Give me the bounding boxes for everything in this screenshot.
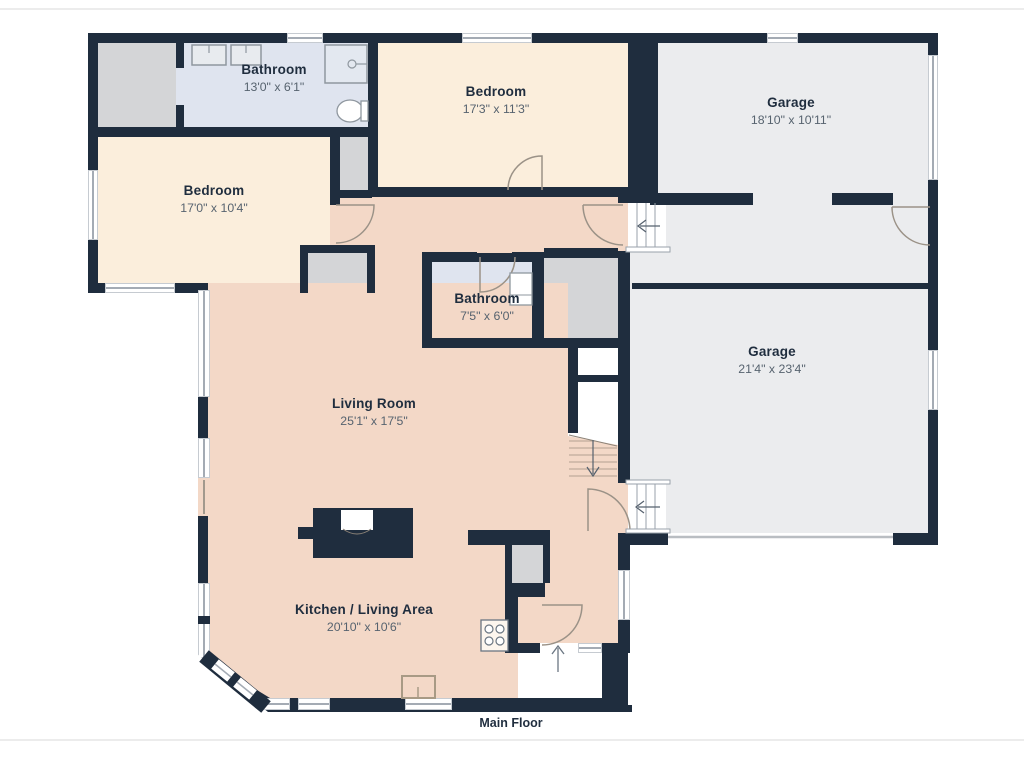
floor-stairs-garage-niche <box>628 483 666 533</box>
wall <box>832 193 893 205</box>
room-label-garage-main: Garage 21'4" x 23'4" <box>738 344 805 376</box>
wall <box>368 187 507 197</box>
floor-pantry <box>512 545 543 583</box>
floor-landing-1 <box>578 348 618 375</box>
floor-closet-a <box>340 137 368 192</box>
wall <box>618 533 668 545</box>
wall <box>468 530 550 545</box>
floor-bathroom-doorway <box>176 68 184 105</box>
window <box>88 170 98 240</box>
patio-door-opening <box>198 478 210 516</box>
wall <box>532 252 544 338</box>
room-name: Garage <box>738 344 805 359</box>
wall <box>367 245 375 293</box>
room-name: Bathroom <box>241 62 306 77</box>
room-name: Living Room <box>332 396 416 411</box>
floor-garage-opening <box>753 193 832 205</box>
wall <box>300 245 375 253</box>
window <box>105 283 175 293</box>
floor-title: Main Floor <box>479 716 542 730</box>
room-dims: 20'10" x 10'6" <box>295 620 433 634</box>
wall <box>602 643 628 710</box>
room-name: Kitchen / Living Area <box>295 602 433 617</box>
room-dims: 25'1" x 17'5" <box>332 414 416 428</box>
window <box>405 698 452 710</box>
entry-door-gap <box>540 643 578 653</box>
window <box>462 33 532 43</box>
wall <box>650 193 753 205</box>
window <box>767 33 798 43</box>
window <box>298 698 330 710</box>
window <box>578 643 602 653</box>
room-dims: 7'5" x 6'0" <box>454 309 519 323</box>
room-dims: 17'3" x 11'3" <box>463 102 530 116</box>
floor-hall-corridor <box>375 253 422 283</box>
wall <box>544 248 618 258</box>
window <box>928 55 938 180</box>
wall <box>543 545 550 583</box>
room-dims: 21'4" x 23'4" <box>738 362 805 376</box>
floor-closet-top-left <box>98 43 176 127</box>
wall <box>98 127 368 137</box>
wall <box>515 643 540 653</box>
floor-doorway-stairs-up <box>618 203 628 251</box>
wall <box>332 190 372 198</box>
floor-closet-b <box>308 253 367 283</box>
floor-stairs-up-niche <box>628 203 666 247</box>
room-label-bathroom-top: Bathroom 13'0" x 6'1" <box>241 62 306 94</box>
garage-door-opening <box>668 533 893 545</box>
wall <box>578 375 618 382</box>
room-label-garage-top: Garage 18'10" x 10'11" <box>751 95 831 127</box>
wall <box>176 105 184 127</box>
window <box>255 698 290 710</box>
room-dims: 18'10" x 10'11" <box>751 113 831 127</box>
window <box>618 570 630 620</box>
room-label-bedroom-left: Bedroom 17'0" x 10'4" <box>180 183 247 215</box>
wall <box>568 338 578 433</box>
floor-landing-2 <box>578 382 618 433</box>
page-border-top <box>0 8 1024 10</box>
floor-doorway-stairs-garage <box>618 483 628 533</box>
room-label-living-room: Living Room 25'1" x 17'5" <box>332 396 416 428</box>
floor-stair-strip <box>568 433 618 535</box>
room-label-kitchen: Kitchen / Living Area 20'10" x 10'6" <box>295 602 433 634</box>
wall <box>893 533 938 545</box>
room-name: Garage <box>751 95 831 110</box>
room-name: Bedroom <box>180 183 247 198</box>
wall <box>300 245 308 293</box>
wall <box>422 338 618 348</box>
wall <box>505 583 545 597</box>
room-name: Bathroom <box>454 291 519 306</box>
room-dims: 17'0" x 10'4" <box>180 201 247 215</box>
room-label-bedroom-top: Bedroom 17'3" x 11'3" <box>463 84 530 116</box>
floor-garage-door-gap <box>893 193 928 205</box>
window <box>928 350 938 410</box>
fireplace-firebox <box>341 510 373 530</box>
wall <box>298 527 313 539</box>
wall <box>540 187 628 197</box>
room-label-bathroom-mid: Bathroom 7'5" x 6'0" <box>454 291 519 323</box>
floor-plan: Bathroom 13'0" x 6'1" Bedroom 17'3" x 11… <box>0 0 1024 768</box>
room-name: Bedroom <box>463 84 530 99</box>
wall <box>198 616 210 624</box>
window <box>198 290 210 397</box>
page-border-bottom <box>0 739 1024 741</box>
wall-garage-beam <box>632 283 928 289</box>
room-dims: 13'0" x 6'1" <box>241 80 306 94</box>
wall <box>422 252 432 348</box>
wall <box>176 43 184 68</box>
exterior-notch <box>518 653 602 698</box>
window <box>287 33 323 43</box>
window <box>198 438 210 478</box>
